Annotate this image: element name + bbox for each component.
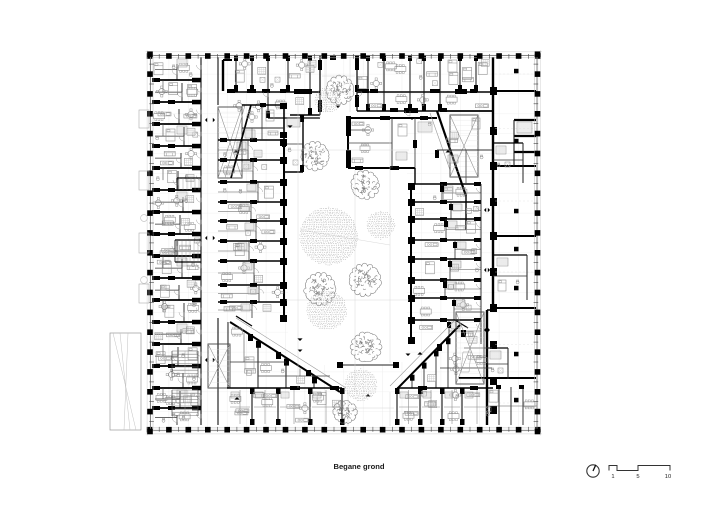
svg-text:5: 5 [636,474,639,480]
svg-text:Begane grond: Begane grond [333,462,384,471]
svg-text:1: 1 [611,474,614,480]
svg-text:10: 10 [665,474,671,480]
